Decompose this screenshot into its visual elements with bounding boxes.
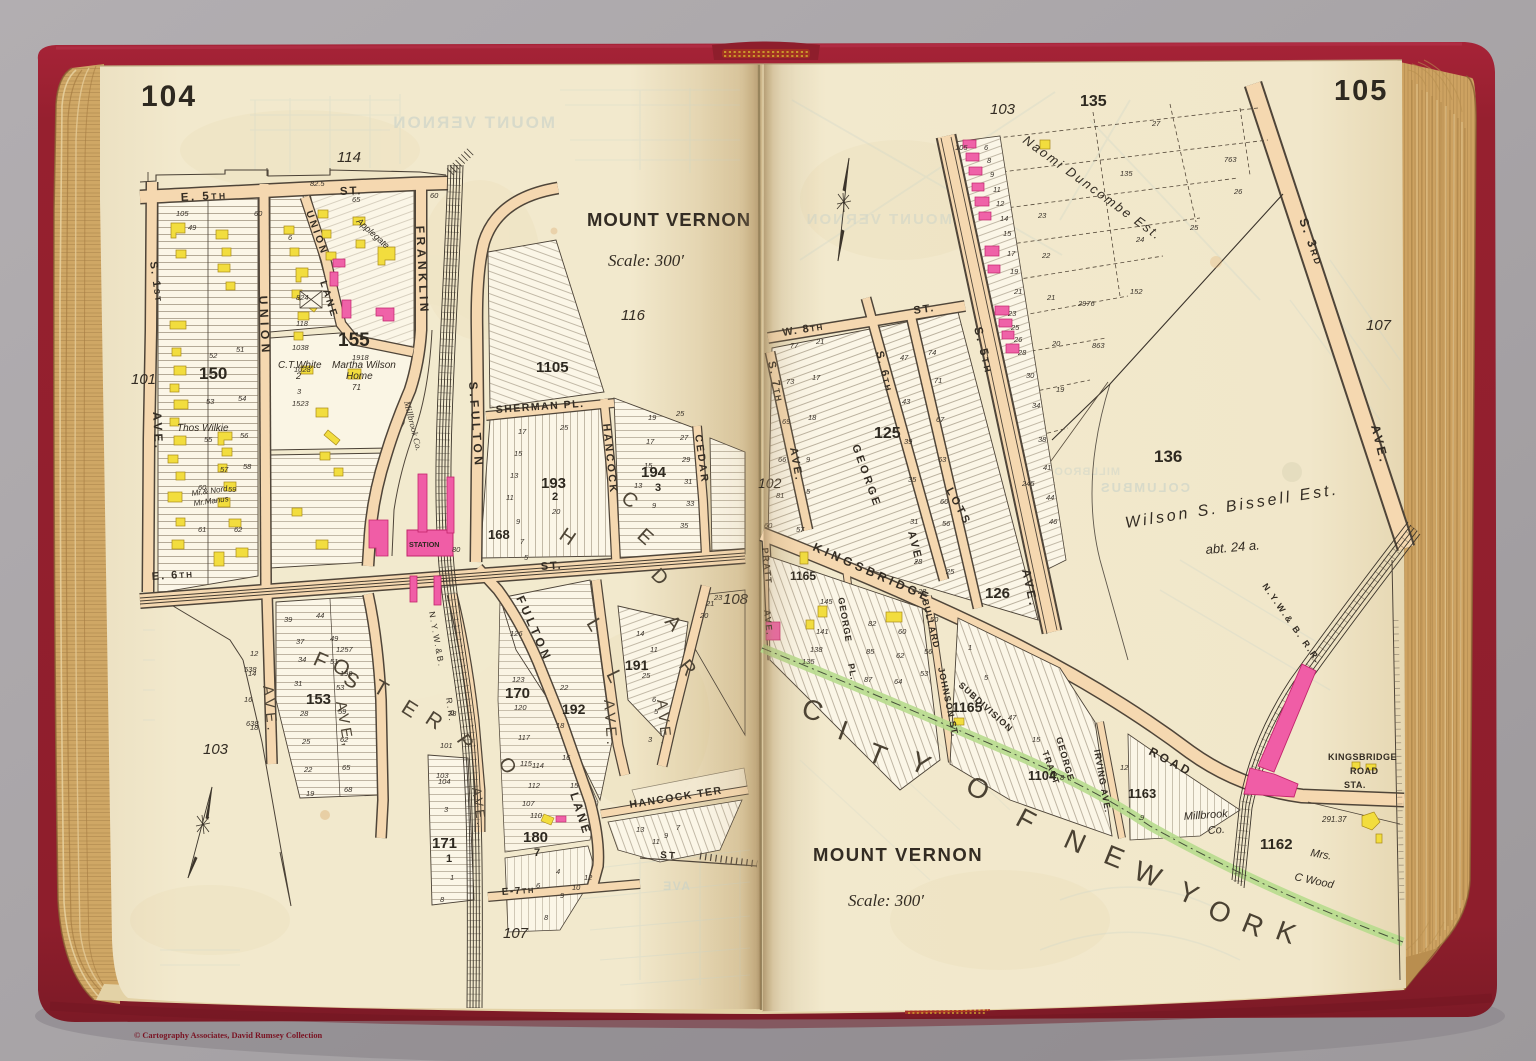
svg-text:34: 34	[1032, 401, 1040, 410]
svg-text:AVE.: AVE.	[150, 411, 166, 451]
svg-text:104: 104	[438, 777, 451, 786]
svg-text:763: 763	[1224, 155, 1237, 164]
svg-text:25: 25	[1010, 323, 1020, 332]
svg-text:105: 105	[1334, 75, 1388, 107]
svg-text:13: 13	[634, 481, 643, 490]
svg-text:53: 53	[336, 683, 345, 692]
svg-text:24: 24	[1135, 235, 1144, 244]
svg-text:53: 53	[206, 397, 215, 406]
svg-text:125: 125	[874, 425, 901, 442]
svg-text:57: 57	[220, 465, 229, 474]
svg-text:25: 25	[559, 423, 569, 432]
svg-text:18: 18	[250, 723, 259, 732]
svg-text:71: 71	[352, 383, 361, 392]
svg-text:180: 180	[523, 829, 548, 846]
svg-text:1: 1	[450, 873, 454, 882]
svg-text:65: 65	[352, 195, 361, 204]
svg-text:58: 58	[243, 462, 252, 471]
svg-text:13: 13	[510, 471, 519, 480]
svg-text:110: 110	[530, 811, 543, 820]
svg-text:21: 21	[1046, 293, 1055, 302]
svg-text:1: 1	[968, 643, 972, 652]
svg-text:15: 15	[514, 449, 523, 458]
svg-text:AVE: AVE	[662, 879, 690, 893]
svg-text:59: 59	[338, 707, 347, 716]
svg-text:53: 53	[920, 669, 929, 678]
svg-text:1105: 1105	[536, 359, 569, 376]
svg-text:STA.: STA.	[1344, 780, 1366, 790]
svg-text:123: 123	[512, 675, 525, 684]
svg-text:54: 54	[238, 394, 246, 403]
svg-text:16: 16	[562, 753, 571, 762]
svg-text:28: 28	[913, 557, 923, 566]
svg-text:51: 51	[330, 657, 338, 666]
svg-text:MOUNT VERNON: MOUNT VERNON	[391, 113, 555, 132]
svg-text:© Cartography Associates, Davi: © Cartography Associates, David Rumsey C…	[134, 1031, 323, 1040]
svg-text:ROAD: ROAD	[1350, 766, 1379, 776]
svg-text:56: 56	[240, 431, 249, 440]
svg-text:171: 171	[432, 835, 457, 852]
svg-text:21: 21	[1013, 287, 1022, 296]
svg-text:62: 62	[340, 735, 349, 744]
svg-text:27: 27	[1151, 119, 1161, 128]
svg-text:47: 47	[1008, 713, 1017, 722]
svg-text:12: 12	[250, 649, 259, 658]
svg-text:19: 19	[306, 789, 315, 798]
svg-text:65: 65	[342, 763, 351, 772]
svg-text:11: 11	[650, 645, 658, 654]
svg-text:55: 55	[204, 435, 213, 444]
svg-text:152: 152	[1130, 287, 1143, 296]
svg-text:51: 51	[236, 345, 244, 354]
svg-text:MILLBROOK: MILLBROOK	[1044, 466, 1120, 478]
svg-text:11: 11	[652, 837, 660, 846]
svg-text:112: 112	[528, 781, 541, 790]
svg-text:1918: 1918	[352, 353, 370, 362]
svg-text:199: 199	[340, 669, 353, 678]
svg-text:13: 13	[636, 825, 645, 834]
svg-text:49: 49	[330, 634, 339, 643]
svg-text:27: 27	[679, 433, 689, 442]
svg-text:52: 52	[209, 351, 218, 360]
svg-text:28: 28	[1017, 348, 1027, 357]
svg-text:56: 56	[924, 647, 933, 656]
svg-text:62: 62	[234, 525, 243, 534]
svg-text:23: 23	[1037, 211, 1047, 220]
svg-text:Home: Home	[346, 371, 373, 382]
svg-text:105: 105	[176, 209, 189, 218]
svg-text:46: 46	[1049, 517, 1058, 526]
svg-text:61: 61	[198, 525, 206, 534]
svg-text:ST.: ST.	[540, 559, 563, 572]
svg-text:43: 43	[902, 397, 911, 406]
svg-text:105: 105	[955, 143, 968, 152]
svg-text:16: 16	[244, 695, 253, 704]
svg-text:18: 18	[556, 721, 565, 730]
svg-text:2: 2	[552, 491, 558, 503]
svg-text:14: 14	[248, 669, 256, 678]
svg-text:37: 37	[296, 637, 305, 646]
svg-text:64: 64	[894, 677, 902, 686]
svg-text:101: 101	[131, 371, 156, 388]
svg-text:10: 10	[572, 883, 581, 892]
svg-text:MOUNT VERNON: MOUNT VERNON	[805, 211, 952, 228]
svg-text:31: 31	[294, 679, 302, 688]
svg-text:22: 22	[559, 683, 569, 692]
svg-text:135: 135	[1120, 169, 1133, 178]
svg-text:23: 23	[1007, 309, 1017, 318]
svg-text:7: 7	[534, 847, 540, 859]
svg-text:60: 60	[198, 483, 207, 492]
svg-text:135: 135	[1080, 93, 1107, 110]
svg-text:44: 44	[316, 611, 324, 620]
svg-text:11: 11	[506, 493, 514, 502]
svg-text:17: 17	[1007, 249, 1016, 258]
svg-text:155: 155	[338, 330, 370, 351]
svg-text:31: 31	[684, 477, 692, 486]
svg-text:115: 115	[520, 759, 533, 768]
svg-text:118: 118	[296, 319, 309, 328]
svg-text:44: 44	[1046, 493, 1054, 502]
svg-text:19: 19	[1010, 267, 1019, 276]
svg-text:85: 85	[866, 647, 875, 656]
svg-text:11: 11	[993, 185, 1001, 194]
svg-text:107: 107	[1366, 317, 1392, 334]
svg-text:17: 17	[646, 437, 655, 446]
svg-text:14: 14	[1000, 214, 1008, 223]
svg-text:87: 87	[864, 675, 873, 684]
svg-text:1038: 1038	[292, 343, 310, 352]
svg-text:150: 150	[199, 364, 227, 383]
svg-text:117: 117	[518, 733, 531, 742]
svg-text:103: 103	[203, 741, 229, 758]
svg-text:153: 153	[306, 691, 331, 708]
svg-text:31: 31	[910, 517, 918, 526]
svg-text:ST: ST	[660, 850, 678, 862]
svg-text:193: 193	[541, 475, 566, 492]
svg-text:114: 114	[532, 761, 544, 770]
svg-text:25: 25	[1189, 223, 1199, 232]
svg-text:60: 60	[898, 627, 907, 636]
svg-text:192: 192	[562, 701, 586, 717]
svg-text:15: 15	[644, 461, 653, 470]
svg-text:1028: 1028	[294, 365, 312, 374]
svg-text:1104: 1104	[1028, 768, 1057, 783]
svg-text:120: 120	[514, 703, 527, 712]
svg-text:245: 245	[1021, 479, 1035, 488]
svg-text:80: 80	[452, 545, 461, 554]
svg-text:824: 824	[296, 293, 309, 302]
svg-text:39: 39	[284, 615, 293, 624]
svg-text:60: 60	[254, 209, 263, 218]
svg-text:1165: 1165	[952, 699, 983, 715]
svg-text:25: 25	[945, 567, 955, 576]
svg-text:126: 126	[510, 629, 523, 638]
svg-text:1162: 1162	[1260, 836, 1293, 853]
svg-text:26: 26	[1233, 187, 1243, 196]
svg-text:Thos Wilkie: Thos Wilkie	[177, 423, 229, 434]
svg-text:41: 41	[1043, 463, 1051, 472]
svg-text:50: 50	[930, 615, 939, 624]
svg-text:63: 63	[938, 455, 947, 464]
svg-text:59: 59	[228, 485, 237, 494]
svg-text:68: 68	[344, 785, 353, 794]
svg-text:25: 25	[301, 737, 311, 746]
svg-text:AVE.: AVE.	[600, 699, 620, 749]
svg-text:30: 30	[1026, 371, 1035, 380]
svg-text:2976: 2976	[1077, 299, 1096, 308]
svg-text:35: 35	[908, 475, 917, 484]
svg-text:60: 60	[940, 497, 949, 506]
svg-text:MOUNT VERNON: MOUNT VERNON	[813, 844, 983, 865]
svg-text:15: 15	[1003, 229, 1012, 238]
svg-text:60: 60	[430, 191, 439, 200]
svg-text:71: 71	[934, 376, 942, 385]
svg-text:47: 47	[900, 353, 909, 362]
svg-text:104: 104	[141, 80, 197, 113]
svg-text:Co.: Co.	[1207, 824, 1225, 837]
svg-text:28: 28	[299, 709, 309, 718]
svg-text:56: 56	[942, 519, 951, 528]
svg-text:COLUMBUS: COLUMBUS	[1099, 480, 1190, 495]
svg-text:38: 38	[1038, 435, 1047, 444]
svg-text:145: 145	[820, 597, 833, 606]
svg-text:19: 19	[648, 413, 657, 422]
svg-text:23: 23	[917, 587, 927, 596]
svg-text:15: 15	[1032, 735, 1041, 744]
svg-text:82.5: 82.5	[310, 179, 325, 188]
svg-text:74: 74	[928, 348, 936, 357]
svg-text:67: 67	[936, 415, 945, 424]
svg-text:25: 25	[675, 409, 685, 418]
svg-text:14: 14	[636, 629, 644, 638]
svg-text:29: 29	[681, 455, 691, 464]
svg-text:22: 22	[1041, 251, 1051, 260]
svg-text:1523: 1523	[292, 399, 310, 408]
svg-text:4: 4	[556, 867, 560, 876]
svg-text:863: 863	[1092, 341, 1105, 350]
svg-text:116: 116	[621, 307, 646, 324]
svg-text:136: 136	[1154, 447, 1182, 466]
svg-text:22: 22	[303, 765, 313, 774]
svg-text:20: 20	[551, 507, 561, 516]
svg-text:12: 12	[1120, 763, 1129, 772]
svg-text:1: 1	[446, 853, 452, 865]
svg-text:107: 107	[522, 799, 535, 808]
svg-text:19: 19	[1056, 385, 1065, 394]
svg-text:Scale: 300′: Scale: 300′	[848, 891, 924, 910]
svg-text:12: 12	[584, 873, 593, 882]
svg-text:Scale: 300′: Scale: 300′	[608, 251, 684, 270]
svg-text:114: 114	[337, 149, 361, 166]
svg-text:17: 17	[518, 427, 527, 436]
svg-text:82: 82	[868, 619, 877, 628]
svg-text:126: 126	[985, 585, 1010, 602]
svg-text:12: 12	[996, 199, 1005, 208]
svg-text:1163: 1163	[1128, 786, 1156, 801]
svg-text:168: 168	[488, 527, 510, 542]
svg-text:107: 107	[503, 925, 529, 942]
svg-text:26: 26	[1013, 335, 1023, 344]
svg-text:103: 103	[990, 101, 1016, 118]
svg-text:3: 3	[655, 482, 661, 494]
svg-text:35: 35	[680, 521, 689, 530]
svg-text:49: 49	[188, 223, 197, 232]
svg-text:KINGSBRIDGE: KINGSBRIDGE	[1328, 752, 1397, 762]
svg-text:15: 15	[570, 781, 579, 790]
svg-text:62: 62	[896, 651, 905, 660]
svg-text:34: 34	[298, 655, 306, 664]
svg-text:170: 170	[505, 685, 530, 702]
svg-text:25: 25	[641, 671, 651, 680]
svg-text:291.37: 291.37	[1321, 815, 1347, 824]
svg-text:101: 101	[440, 741, 453, 750]
svg-text:1257: 1257	[336, 645, 354, 654]
svg-text:39: 39	[904, 437, 913, 446]
svg-text:STATION: STATION	[409, 540, 439, 549]
svg-text:38: 38	[448, 709, 457, 718]
svg-text:20: 20	[1051, 339, 1061, 348]
svg-text:33: 33	[686, 499, 695, 508]
